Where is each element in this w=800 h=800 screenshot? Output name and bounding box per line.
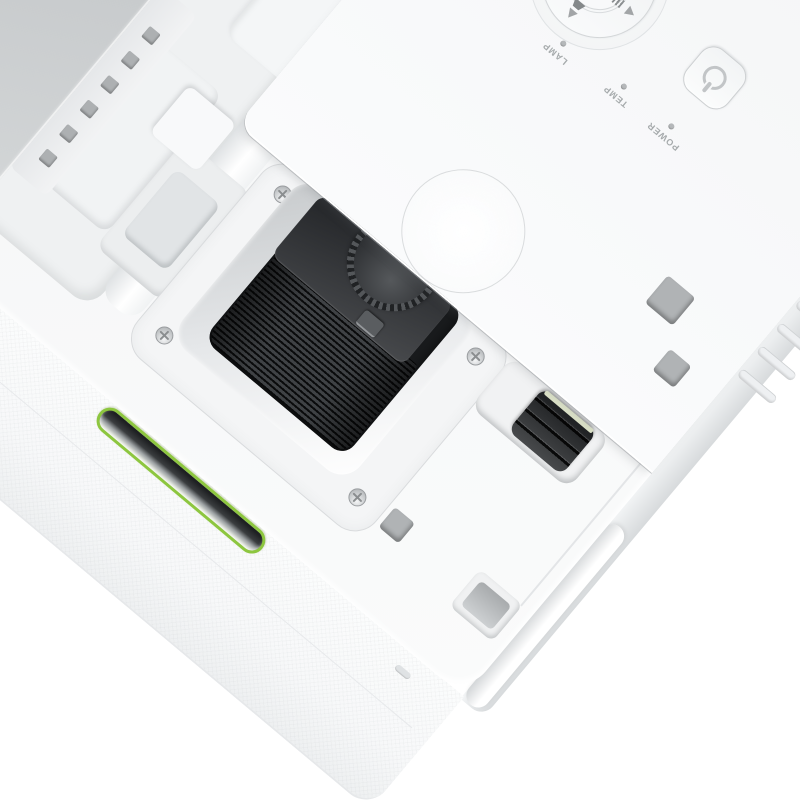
product-photo-projector-top: OK POWER TEMP LAMP — [0, 0, 800, 800]
